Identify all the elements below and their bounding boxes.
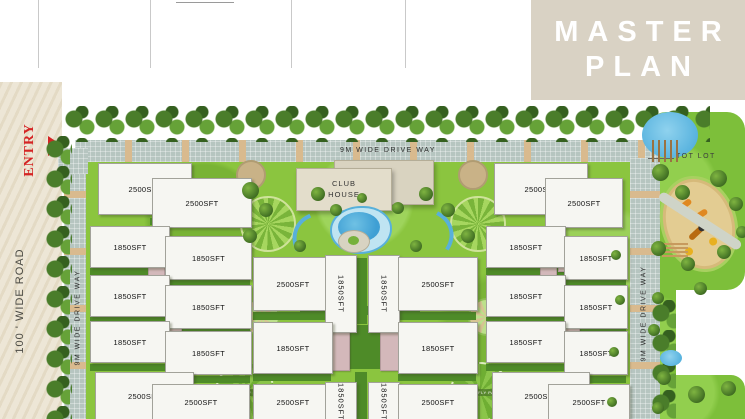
building: 2500SFT (152, 384, 250, 419)
pergola-posts (652, 140, 654, 162)
building: 2500SFT (253, 384, 333, 419)
site-plan: 9M WIDE DRIVE WAY 9M WIDE DRIVE WAY 9M W… (0, 0, 745, 419)
pool-island (338, 230, 370, 253)
building: 2500SFT (398, 257, 478, 311)
building: 1850SFT (486, 321, 566, 363)
tree (419, 187, 433, 201)
building: 2500SFT (398, 384, 478, 419)
building: 1850SFT (486, 226, 566, 268)
building-area-label: 1850SFT (580, 254, 613, 263)
building: 1850SFT (368, 255, 400, 333)
tree-row-top (65, 106, 710, 142)
tree (615, 295, 625, 305)
tree (441, 203, 455, 217)
tree (242, 182, 259, 199)
club-house: CLUBHOUSE (296, 168, 392, 211)
tree (609, 347, 619, 357)
tree (648, 324, 660, 336)
pergola-posts (664, 140, 666, 162)
park-steps (662, 251, 688, 253)
tree (651, 241, 666, 256)
building-area-label: 1850SFT (422, 344, 455, 353)
building-area-label: 1850SFT (580, 303, 613, 312)
drive-way-right-label: 9M WIDE DRIVE WAY (641, 282, 648, 362)
building: 1850SFT (486, 275, 566, 317)
tree (330, 204, 342, 216)
tree (392, 202, 404, 214)
tree (694, 282, 707, 295)
building: 1850SFT (90, 226, 170, 268)
building-area-label: 1850SFT (510, 338, 543, 347)
lawn-strip (398, 374, 476, 381)
tree (688, 386, 705, 403)
pond (660, 350, 682, 366)
pergola-posts (670, 140, 672, 162)
tree (410, 240, 422, 252)
building-area-label: 2500SFT (568, 199, 601, 208)
lawn-strip (253, 374, 331, 381)
building: 1850SFT (165, 285, 252, 329)
building-area-label: 2500SFT (277, 280, 310, 289)
building: 1850SFT (165, 331, 252, 375)
tree (657, 371, 671, 385)
tree (294, 240, 306, 252)
pergola-posts (676, 140, 678, 162)
pergola-posts (658, 140, 660, 162)
drive-way-left-label: 9M WIDE DRIVE WAY (75, 286, 82, 366)
tree (652, 292, 664, 304)
building-area-label: 1850SFT (510, 243, 543, 252)
building: 1850SFT (564, 285, 628, 329)
park-steps (662, 247, 688, 249)
tree (736, 226, 745, 238)
tree (243, 229, 257, 243)
tot-lot-label: TOT LOT (676, 153, 716, 160)
tree (259, 203, 273, 217)
building-area-label: 1850SFT (580, 349, 613, 358)
tree (675, 185, 690, 200)
building: 2500SFT (253, 257, 333, 311)
tree (717, 245, 731, 259)
building-area-label: 1850SFT (192, 254, 225, 263)
lawn-strip (486, 364, 564, 371)
lawn-strip (90, 364, 168, 371)
building: 1850SFT (253, 322, 333, 374)
building-area-label: 1850SFT (114, 292, 147, 301)
park-steps (662, 243, 688, 245)
tree (721, 381, 736, 396)
building-area-label: 1850SFT (277, 344, 310, 353)
building-area-label: 1850SFT (380, 275, 389, 313)
tree (652, 164, 669, 181)
building: 1850SFT (398, 322, 478, 374)
building: 2500SFT (545, 178, 623, 228)
building-area-label: 2500SFT (573, 398, 606, 407)
building-area-label: 2500SFT (422, 280, 455, 289)
building: 1850SFT (90, 275, 170, 317)
tree (607, 397, 617, 407)
tree (611, 250, 621, 260)
tree (729, 197, 743, 211)
tree (681, 257, 695, 271)
building-area-label: 2500SFT (186, 199, 219, 208)
building-area-label: 1850SFT (337, 275, 346, 313)
tree-row-left (46, 136, 72, 419)
tree (311, 187, 325, 201)
drive-way-top-label: 9M WIDE DRIVE WAY (340, 147, 436, 154)
building-area-label: 1850SFT (192, 303, 225, 312)
building-area-label: 1850SFT (114, 243, 147, 252)
building-area-label: 1850SFT (192, 349, 225, 358)
building: 1850SFT (368, 382, 400, 419)
master-plan-page: PARKING AREA CLUB HOUSE TOT LOT MASTER P… (0, 0, 745, 419)
tree (357, 193, 367, 203)
tree (652, 402, 664, 414)
building: 1850SFT (90, 321, 170, 363)
building-area-label: 2500SFT (422, 398, 455, 407)
building-area-label: 1850SFT (337, 383, 346, 419)
building-area-label: 1850SFT (510, 292, 543, 301)
building: 2500SFT (152, 178, 252, 228)
garden-circle (458, 160, 488, 190)
building: 1850SFT (165, 236, 252, 280)
building: 1850SFT (325, 382, 357, 419)
building-area-label: 1850SFT (114, 338, 147, 347)
tree (710, 170, 727, 187)
building: 2500SFT (548, 384, 630, 419)
building-area-label: 2500SFT (277, 398, 310, 407)
building-area-label: 1850SFT (380, 383, 389, 419)
tree (461, 229, 475, 243)
building-area-label: 2500SFT (185, 398, 218, 407)
